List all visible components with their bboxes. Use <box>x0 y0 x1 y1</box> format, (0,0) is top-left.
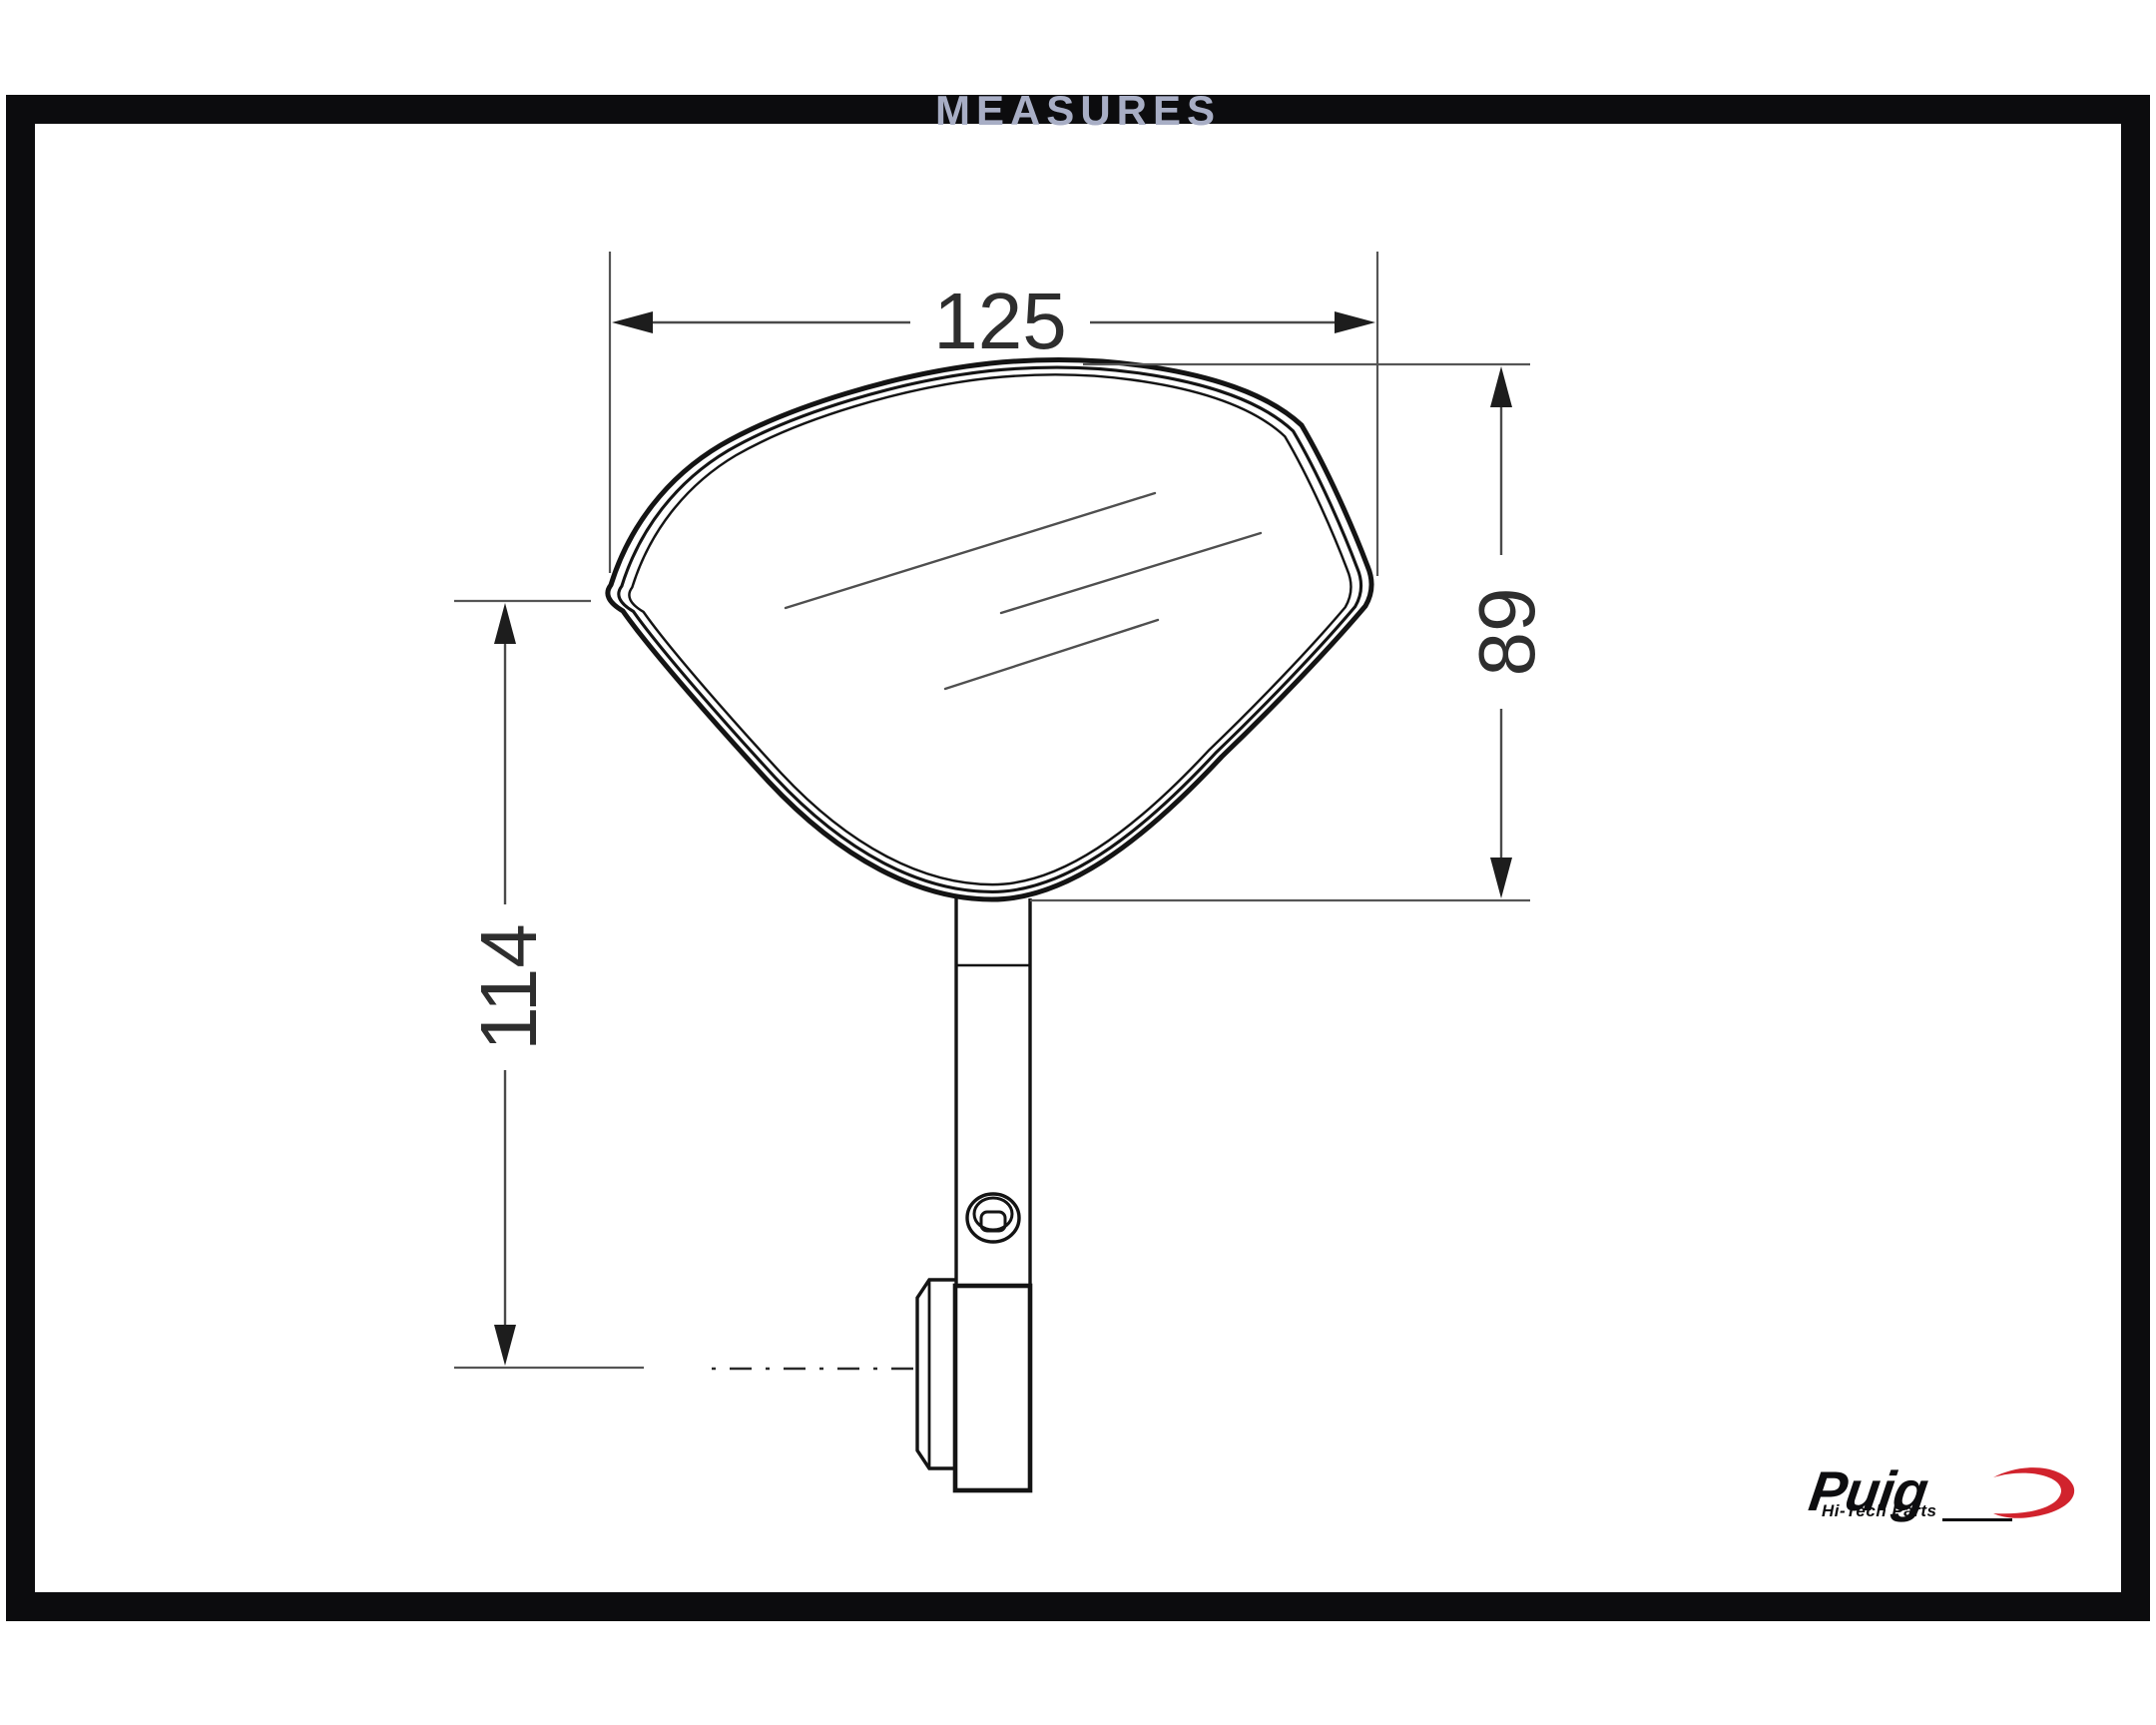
dim-head-height-label: 89 <box>1462 588 1551 677</box>
clamp-body <box>955 1286 1030 1490</box>
arrowhead-right-icon <box>1335 311 1375 333</box>
swoosh-shape <box>1993 1467 2074 1518</box>
arrowhead-down-icon <box>1490 858 1512 898</box>
mirror-rim-middle <box>619 367 1361 891</box>
glass-reflection-line <box>1001 533 1261 613</box>
mirror-stem <box>917 896 1030 1490</box>
arrowhead-up-icon <box>494 603 516 644</box>
glass-reflection-lines <box>786 493 1261 689</box>
dimension-stem-height: 114 <box>454 601 644 1368</box>
logo-tagline-text: Hi-Tech Parts <box>1822 1501 1936 1521</box>
dimension-width: 125 <box>610 252 1377 576</box>
mirror-head <box>608 359 1371 899</box>
logo-swoosh-icon <box>1989 1461 2081 1523</box>
mirror-rim-outer <box>608 359 1371 899</box>
technical-drawing-page: MEASURES <box>0 0 2156 1725</box>
mirror-rim-inner <box>629 374 1350 884</box>
arrowhead-up-icon <box>1490 366 1512 407</box>
bar-end-flange <box>917 1280 955 1468</box>
glass-reflection-line <box>945 620 1158 689</box>
dim-width-label: 125 <box>933 277 1066 365</box>
glass-reflection-line <box>786 493 1155 608</box>
arrowhead-down-icon <box>494 1325 516 1366</box>
page-title: MEASURES <box>0 87 2156 135</box>
arrowhead-left-icon <box>612 311 653 333</box>
dim-stem-height-label: 114 <box>464 923 553 1051</box>
socket-bolt-icon <box>967 1194 1019 1242</box>
logo-underline <box>1942 1518 2012 1521</box>
